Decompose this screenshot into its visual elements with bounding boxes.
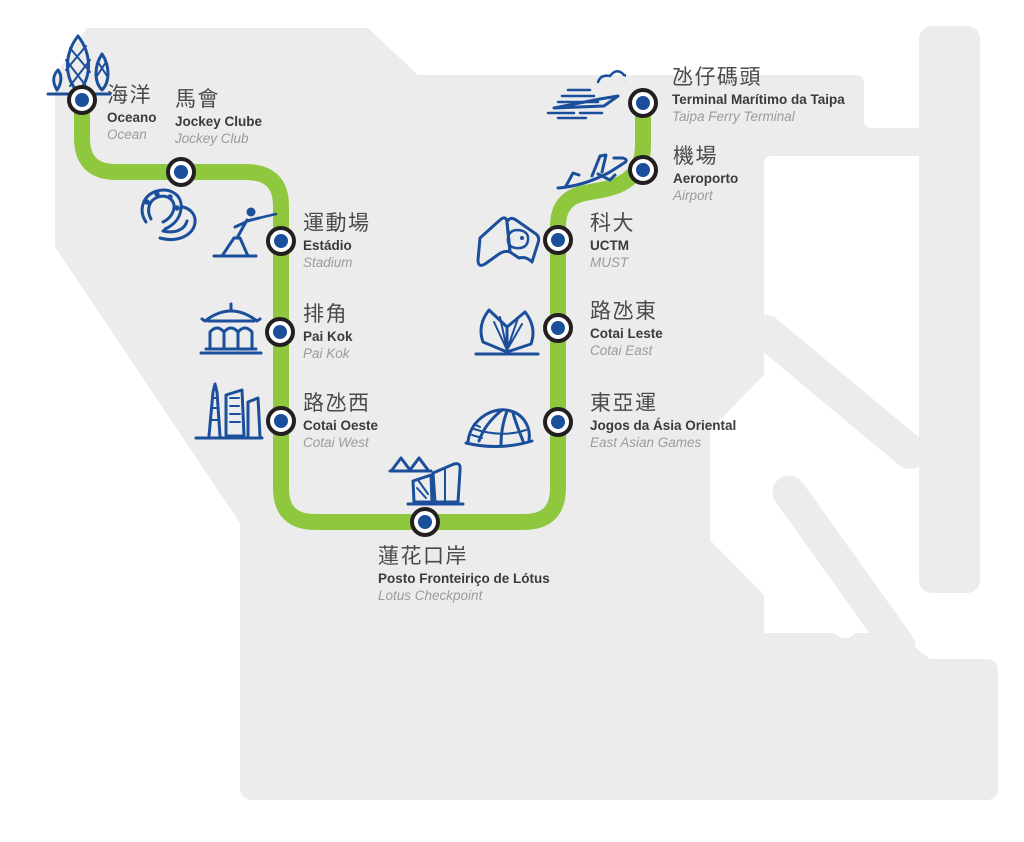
bridge-arm-north: [766, 332, 910, 452]
station-name-pt: Pai Kok: [303, 329, 353, 346]
station-label-cotai-oeste: 路氹西Cotai OesteCotai West: [303, 392, 378, 452]
station-name-en: Taipa Ferry Terminal: [672, 109, 845, 126]
station-marker-estadio[interactable]: [266, 226, 296, 256]
station-dot: [174, 165, 188, 179]
station-name-zh: 路氹東: [590, 300, 663, 324]
station-label-lotus: 蓮花口岸Posto Fronteiriço de LótusLotus Chec…: [378, 545, 550, 605]
station-name-pt: Aeroporto: [673, 171, 738, 188]
station-name-en: Jockey Club: [175, 131, 262, 148]
station-dot: [636, 96, 650, 110]
station-name-zh: 路氹西: [303, 392, 378, 416]
station-label-east-asian-games: 東亞運Jogos da Ásia OrientalEast Asian Game…: [590, 392, 736, 452]
station-marker-uctm[interactable]: [543, 225, 573, 255]
station-dot: [274, 414, 288, 428]
checkpoint-building-icon: [388, 450, 466, 508]
station-dot: [418, 515, 432, 529]
station-dot: [274, 234, 288, 248]
station-name-en: East Asian Games: [590, 435, 736, 452]
station-marker-aeroporto[interactable]: [628, 155, 658, 185]
dome-icon: [462, 403, 536, 451]
station-name-zh: 蓮花口岸: [378, 545, 550, 569]
airport-runway-island: [919, 26, 980, 593]
station-label-jockey-club: 馬會Jockey ClubeJockey Club: [175, 88, 262, 148]
station-label-aeroporto: 機場AeroportoAirport: [673, 145, 738, 205]
pavilion-icon: [198, 301, 264, 355]
station-name-en: MUST: [590, 255, 635, 272]
station-marker-pai-kok[interactable]: [265, 317, 295, 347]
station-name-zh: 機場: [673, 145, 738, 169]
station-name-pt: Posto Fronteiriço de Lótus: [378, 571, 550, 588]
station-name-zh: 排角: [303, 303, 353, 327]
station-name-pt: Cotai Oeste: [303, 418, 378, 435]
station-dot: [273, 325, 287, 339]
station-marker-lotus[interactable]: [410, 507, 440, 537]
book-building-icon: [472, 300, 542, 358]
station-marker-east-asian-games[interactable]: [543, 407, 573, 437]
station-name-zh: 科大: [590, 212, 635, 236]
station-name-zh: 運動場: [303, 212, 371, 236]
station-label-uctm: 科大UCTMMUST: [590, 212, 635, 272]
station-label-taipa-ferry: 氹仔碼頭Terminal Marítimo da TaipaTaipa Ferr…: [672, 66, 845, 126]
station-dot: [551, 233, 565, 247]
transit-map: 海洋OceanoOcean馬會Jockey ClubeJockey Club運動…: [0, 0, 1024, 842]
station-name-en: Lotus Checkpoint: [378, 588, 550, 605]
station-name-en: Airport: [673, 188, 738, 205]
station-label-pai-kok: 排角Pai KokPai Kok: [303, 303, 353, 363]
book-logo-icon: [470, 210, 544, 274]
station-dot: [551, 321, 565, 335]
station-dot: [75, 93, 89, 107]
station-name-pt: UCTM: [590, 238, 635, 255]
horseshoe-icon: [130, 186, 204, 244]
coloane-block: [753, 633, 998, 800]
airplane-icon: [552, 144, 632, 194]
towers-icon: [194, 380, 266, 442]
station-name-pt: Terminal Marítimo da Taipa: [672, 92, 845, 109]
station-name-zh: 氹仔碼頭: [672, 66, 845, 90]
station-name-zh: 東亞運: [590, 392, 736, 416]
station-name-pt: Jockey Clube: [175, 114, 262, 131]
station-name-zh: 海洋: [107, 84, 157, 108]
station-name-en: Pai Kok: [303, 346, 353, 363]
station-label-estadio: 運動場EstádioStadium: [303, 212, 371, 272]
station-name-pt: Estádio: [303, 238, 371, 255]
station-marker-jockey-club[interactable]: [166, 157, 196, 187]
station-dot: [551, 415, 565, 429]
station-name-en: Cotai West: [303, 435, 378, 452]
station-name-en: Cotai East: [590, 343, 663, 360]
ferry-icon: [546, 68, 626, 122]
station-name-zh: 馬會: [175, 88, 262, 112]
station-name-pt: Cotai Leste: [590, 326, 663, 343]
fencer-icon: [210, 202, 278, 260]
station-marker-taipa-ferry[interactable]: [628, 88, 658, 118]
station-marker-cotai-leste[interactable]: [543, 313, 573, 343]
station-dot: [636, 163, 650, 177]
station-name-pt: Jogos da Ásia Oriental: [590, 418, 736, 435]
station-label-cotai-leste: 路氹東Cotai LesteCotai East: [590, 300, 663, 360]
station-marker-cotai-oeste[interactable]: [266, 406, 296, 436]
station-name-en: Ocean: [107, 127, 157, 144]
station-marker-oceano[interactable]: [67, 85, 97, 115]
station-name-en: Stadium: [303, 255, 371, 272]
station-label-oceano: 海洋OceanoOcean: [107, 84, 157, 144]
station-name-pt: Oceano: [107, 110, 157, 127]
